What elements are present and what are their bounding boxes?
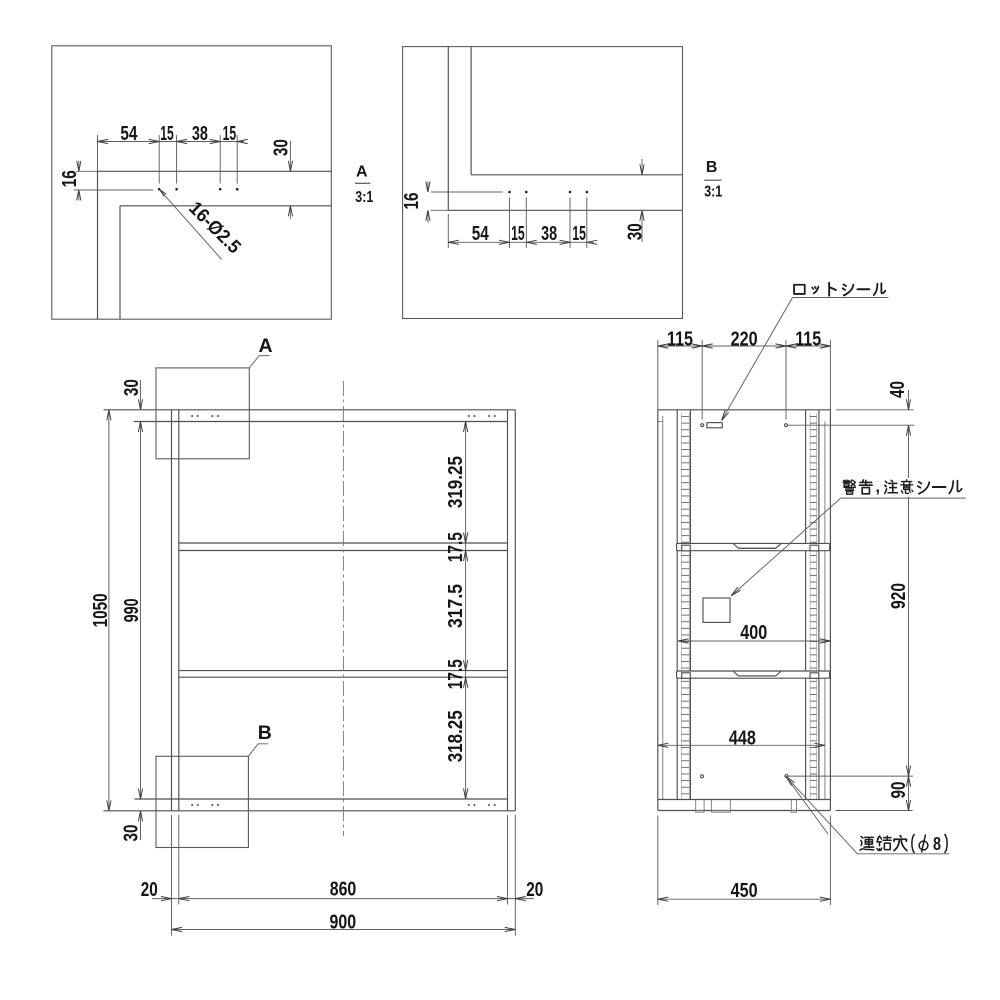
svg-text:220: 220	[731, 329, 758, 351]
svg-text:400: 400	[740, 622, 767, 644]
svg-text:8: 8	[933, 834, 941, 854]
svg-text:30: 30	[270, 139, 292, 156]
svg-text:860: 860	[330, 879, 357, 901]
svg-text:20: 20	[526, 879, 543, 901]
svg-text:B: B	[706, 159, 718, 176]
svg-text:A: A	[259, 335, 273, 357]
svg-text:115: 115	[667, 329, 693, 351]
svg-text:30: 30	[121, 379, 143, 396]
svg-text:1050: 1050	[90, 593, 112, 627]
svg-text:17.5: 17.5	[445, 532, 467, 562]
svg-text:15: 15	[511, 223, 525, 245]
svg-text:990: 990	[121, 598, 143, 622]
svg-text:38: 38	[541, 223, 557, 245]
svg-text:319.25: 319.25	[445, 456, 467, 508]
svg-text:20: 20	[141, 879, 158, 901]
svg-text:318.25: 318.25	[445, 710, 467, 762]
svg-text:115: 115	[795, 329, 821, 351]
svg-text:16: 16	[59, 170, 81, 187]
svg-text:3:1: 3:1	[704, 184, 722, 201]
svg-text:38: 38	[192, 123, 208, 145]
svg-text:448: 448	[729, 728, 756, 750]
svg-text:54: 54	[472, 223, 490, 245]
svg-text:54: 54	[120, 123, 138, 145]
svg-text:A: A	[356, 163, 368, 180]
svg-text:30: 30	[625, 223, 647, 240]
svg-text:16: 16	[401, 193, 423, 210]
svg-text:3:1: 3:1	[355, 189, 373, 206]
svg-text:,: ,	[875, 477, 880, 496]
svg-text:15: 15	[223, 123, 237, 145]
svg-text:B: B	[258, 722, 272, 744]
svg-text:40: 40	[887, 381, 909, 398]
svg-text:15: 15	[572, 223, 586, 245]
svg-text:17.5: 17.5	[445, 659, 467, 689]
svg-text:920: 920	[888, 583, 910, 609]
svg-text:317.5: 317.5	[445, 584, 467, 628]
svg-text:450: 450	[731, 880, 758, 902]
svg-text:900: 900	[330, 912, 357, 934]
svg-text:15: 15	[160, 123, 174, 145]
svg-text:90: 90	[888, 782, 910, 799]
svg-text:30: 30	[121, 825, 143, 842]
